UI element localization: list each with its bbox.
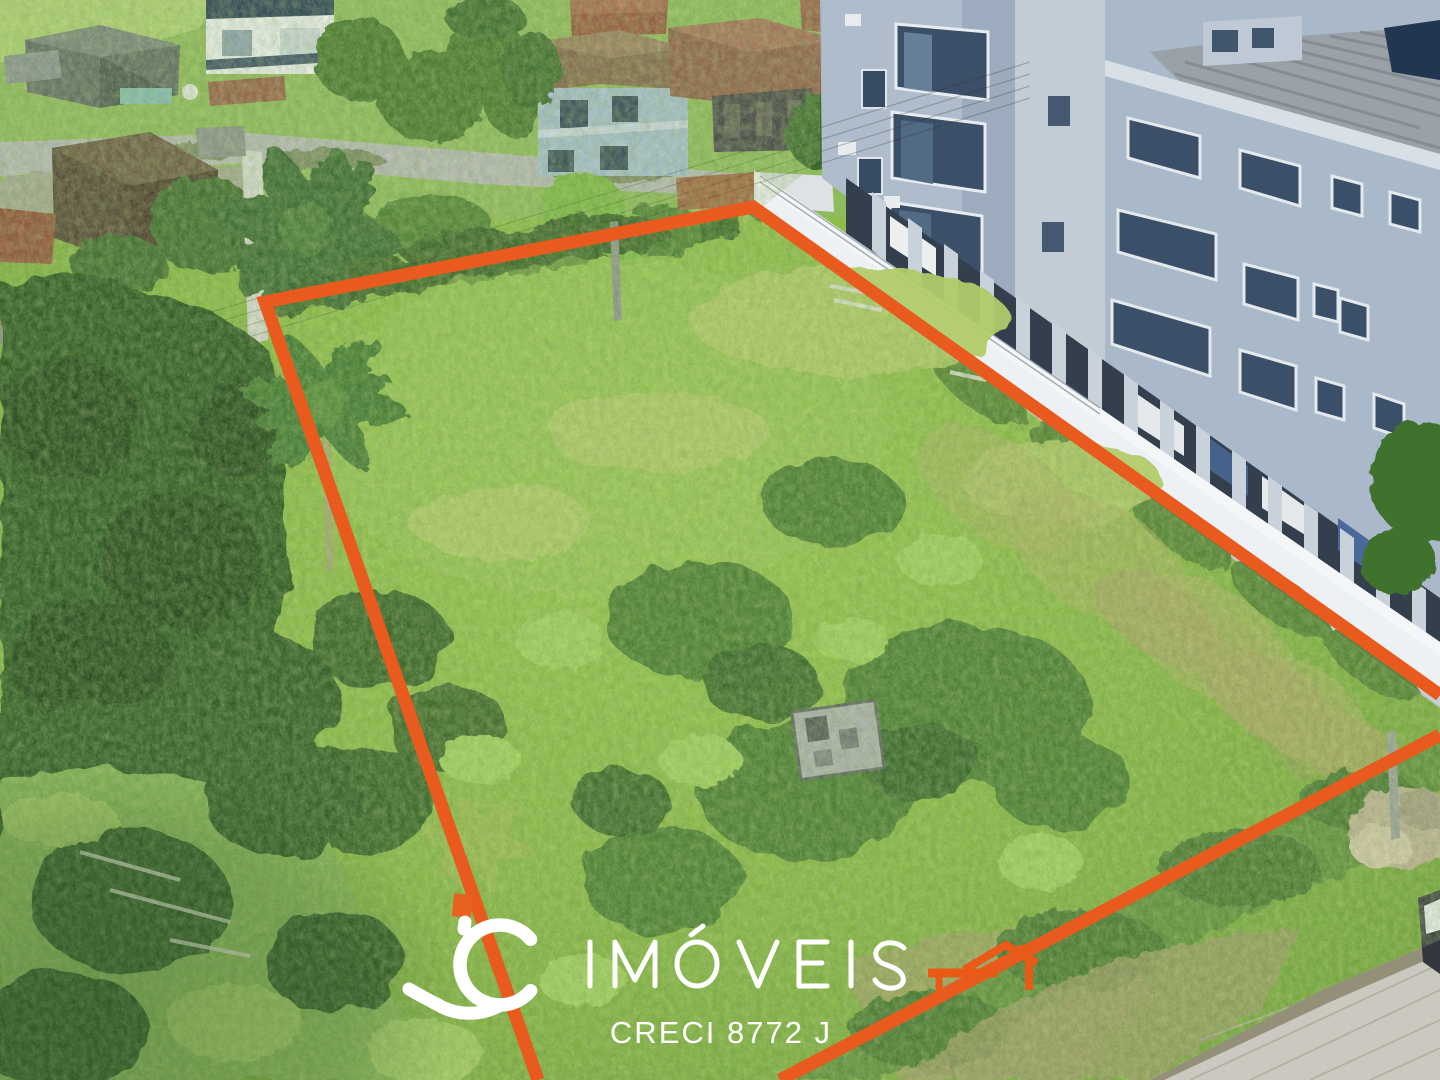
svg-text:CRECI 8772 J: CRECI 8772 J [610,1015,832,1050]
